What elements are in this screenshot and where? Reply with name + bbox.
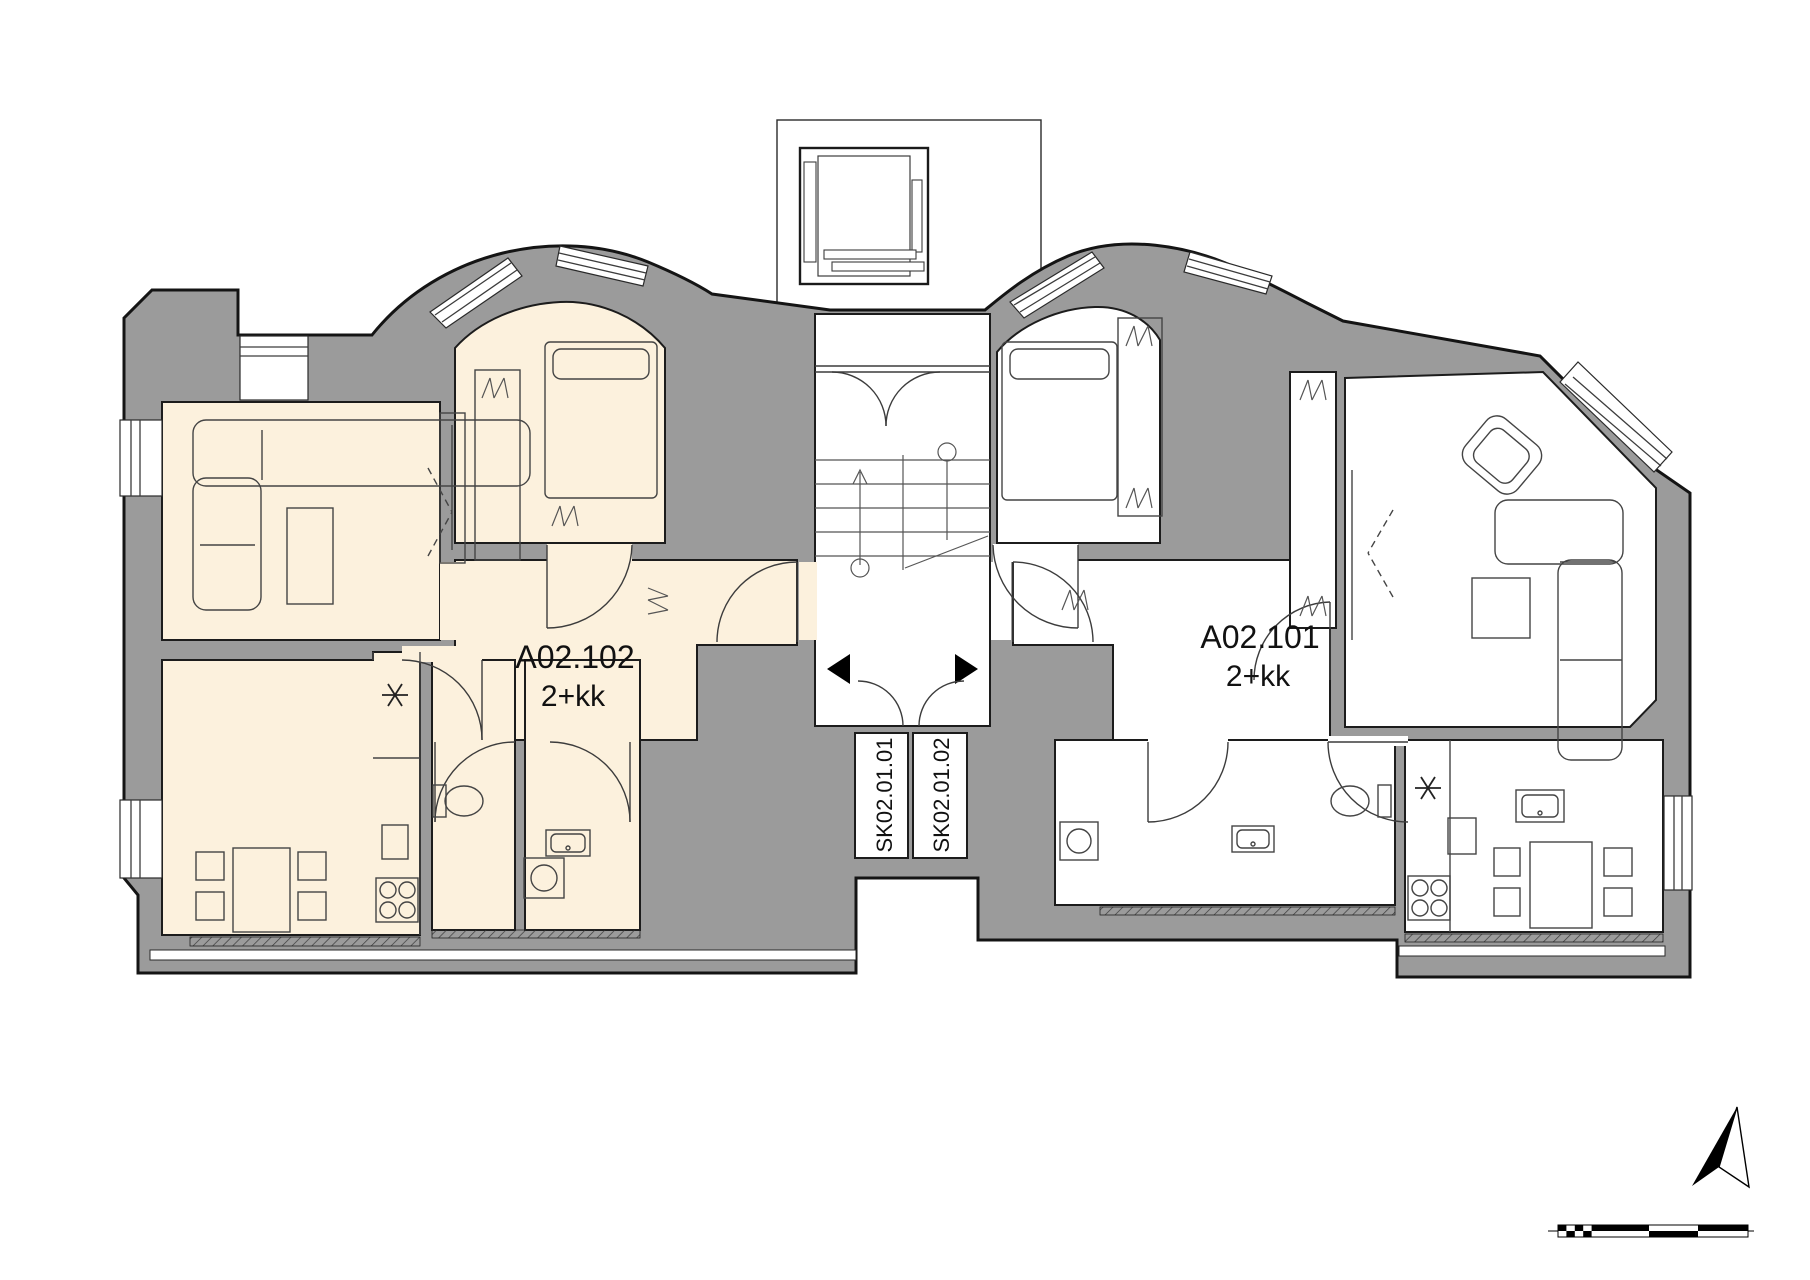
storage-label-1: SK02.01.01 (872, 738, 897, 853)
scale-bar (1548, 1225, 1754, 1237)
elevator-shaft (777, 120, 1041, 310)
room-wc-102 (432, 660, 515, 930)
unit-layout-a02-101: 2+kk (1226, 660, 1291, 693)
unit-label-a02-102: A02.102 (515, 639, 634, 675)
unit-label-a02-101: A02.101 (1200, 619, 1319, 655)
storage-label-2: SK02.01.02 (929, 738, 954, 853)
niche-101 (1290, 372, 1336, 628)
window-left-lower (120, 800, 162, 878)
north-arrow-icon (1692, 1107, 1749, 1187)
window-right-wall (1664, 796, 1692, 890)
unit-layout-a02-102: 2+kk (541, 680, 606, 713)
window-top-left (240, 336, 308, 400)
unit-a02-101-rooms (993, 307, 1663, 932)
window-left-upper (120, 420, 162, 496)
floor-plan-canvas: SK02.01.01 SK02.01.02 (0, 0, 1810, 1280)
floor-plan-svg: SK02.01.01 SK02.01.02 (0, 0, 1810, 1280)
room-kitchen-101 (1405, 740, 1663, 932)
